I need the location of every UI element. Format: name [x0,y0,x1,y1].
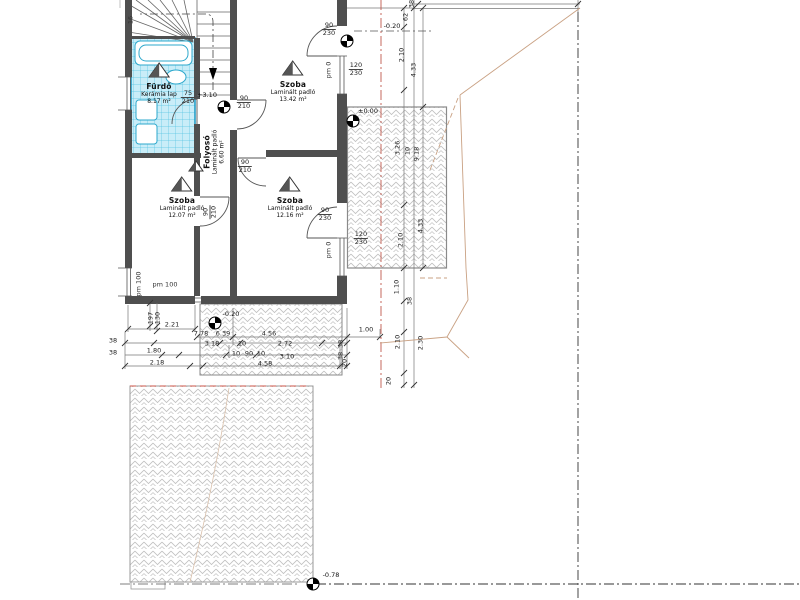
dimension-label: 10 [232,351,240,358]
room-symbol-triangle [171,176,193,192]
room-floor: Kerámia lap [141,91,177,98]
opening-size-label: 120230 [354,231,368,246]
room-area: 6.60 m² [219,130,226,175]
level-value: +3.10 [197,91,217,99]
dimension-label: 2.10 [398,233,405,247]
dimension-label: 2.72 [278,341,292,348]
dimension-label: 10 [257,351,265,358]
dimension-label: 1.10 [394,280,401,294]
dimension-label: 38 [109,338,117,345]
dimension-label: 7.78 [194,331,208,338]
dimension-label: 2.21 [165,322,179,329]
annotation-label: 16 [128,16,135,24]
dimension-label: 2.30 [418,336,425,350]
level-value: -0.20 [223,310,240,318]
room-symbol-triangle [282,60,304,76]
opening-size-label: 75210 [181,90,195,105]
level-marker-icon [340,34,354,48]
dimension-label: 38 [109,350,117,357]
opening-size-label: 90210 [238,159,252,174]
room-name: Szoba [160,196,205,205]
dimension-label: 4.33 [418,219,425,233]
dimension-label: 4.58 [258,361,272,368]
dimension-label: 4.33 [411,63,418,77]
dimension-label: 4.56 [262,331,276,338]
dimension-label: 130 [155,312,162,324]
dimension-label: 2.10 [399,48,406,62]
room-area: 8.17 m² [141,98,177,105]
annotation-label: pm 100 [136,272,143,297]
annotation-label: pm 100 [153,282,178,289]
dimension-label: 38 [407,297,414,305]
room-floor: Laminált padló [160,205,205,212]
level-marker-icon [346,114,360,128]
level-marker-icon [306,577,320,591]
room-symbol-triangle [188,160,204,172]
dimension-label: 20 [342,359,349,367]
dimension-label: 3.10 [280,354,294,361]
annotation-label: pm 0 [326,62,333,79]
room-floor: Laminált padló [268,205,313,212]
level-marker-icon [217,100,231,114]
dimension-label: 3.26 [395,141,402,155]
room-label-folyoso: Folyosó Laminált padló 6.60 m² [203,130,226,175]
annotation-label: pm 0 [326,242,333,259]
dimension-label: 3.18 [205,341,219,348]
room-label-furdo: Fürdő Kerámia lap 8.17 m² [141,62,177,105]
dimension-label: 1.80 [147,348,161,355]
room-symbol-triangle [279,176,301,192]
room-area: 13.42 m² [271,96,316,103]
opening-size-label: 90210 [203,205,218,219]
room-area: 12.16 m² [268,212,313,219]
dimension-label: 90 [245,351,253,358]
dimension-label: 10 [405,147,412,155]
room-floor: Laminált padló [212,130,219,175]
room-symbol-triangle [148,62,170,78]
level-marker-icon [208,316,222,330]
floor-plan-drawing [0,0,800,600]
opening-size-label: 120230 [349,62,363,77]
dimension-label: 9.18 [414,147,421,161]
dimension-label: 2.10 [395,335,402,349]
dimension-label: 38 [409,0,416,8]
room-label-szoba-3: Szoba Laminált padló 12.16 m² [268,176,313,219]
room-area: 12.07 m² [160,212,205,219]
dimension-label: 62 [403,13,410,21]
room-floor: Laminált padló [271,89,316,96]
dimension-label: 10 [238,341,246,348]
shower-icon [136,124,157,144]
floor-plan-canvas: Fürdő Kerámia lap 8.17 m² Folyosó Laminá… [0,0,800,600]
level-value: -0.20 [384,22,401,30]
opening-size-label: 90230 [318,207,332,222]
dimension-label: 6.39 [216,331,230,338]
level-value: ±0.00 [358,107,378,115]
room-name: Szoba [271,80,316,89]
room-label-szoba-2: Szoba Laminált padló 12.07 m² [160,176,205,219]
dimension-label: 2.18 [150,360,164,367]
paved-area-southwest [130,386,313,589]
opening-size-label: 90230 [322,22,336,37]
dimension-label: 20 [386,377,393,385]
level-value: -0.78 [323,571,340,579]
room-label-szoba-1: Szoba Laminált padló 13.42 m² [271,60,316,103]
opening-size-label: 90210 [237,95,251,110]
dimension-label: 1.00 [359,327,373,334]
room-name: Fürdő [141,82,177,91]
room-name: Szoba [268,196,313,205]
dimension-label: 38 [338,340,345,348]
